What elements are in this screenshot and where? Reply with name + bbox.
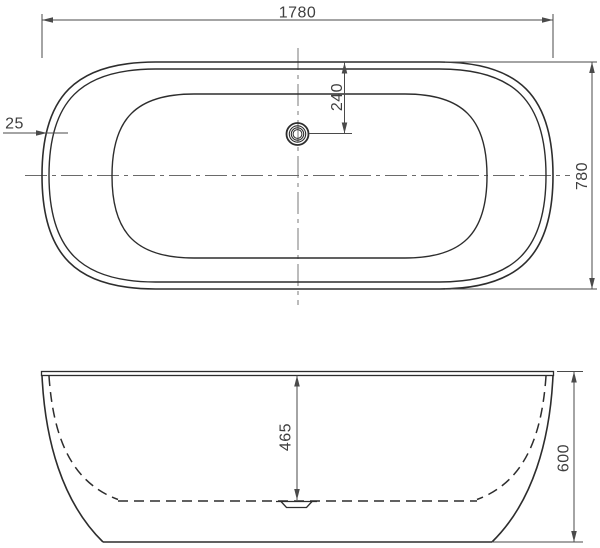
drain-recess-icon (276, 502, 317, 508)
basin-outline (112, 94, 487, 258)
bathtub-technical-drawing: 1780 25 240 780 (0, 0, 600, 548)
dim-label-inner-depth: 465 (278, 423, 295, 451)
arrow-down-icon (342, 123, 348, 134)
dim-label-rim-thickness: 25 (5, 116, 24, 133)
arrow-left-icon (42, 17, 53, 23)
dim-label-drain-offset: 240 (329, 83, 346, 111)
arrow-down-icon (589, 278, 595, 289)
dim-label-overall-length: 1780 (279, 5, 317, 22)
drawing-svg: 1780 25 240 780 (0, 0, 600, 548)
dim-overall-height: 600 (492, 372, 583, 543)
dim-drain-offset: 240 (309, 62, 352, 134)
arrow-down-icon (571, 531, 577, 542)
arrow-up-icon (571, 372, 577, 383)
arrow-right-icon (542, 17, 553, 23)
rim-edge-outline (42, 372, 554, 376)
dim-inner-depth: 465 (278, 376, 300, 501)
arrow-down-icon (294, 489, 300, 500)
inner-wall-right (477, 376, 546, 500)
drain-icon (287, 123, 309, 145)
arrow-up-icon (342, 63, 348, 74)
dim-overall-length: 1780 (42, 5, 553, 58)
arrow-up-icon (589, 62, 595, 73)
side-view: 465 600 (42, 372, 584, 543)
arrow-up-icon (294, 376, 300, 387)
top-view: 1780 25 240 780 (3, 5, 597, 305)
dim-label-overall-width: 780 (574, 162, 591, 190)
inner-wall-left (49, 376, 118, 500)
dim-label-overall-height: 600 (556, 444, 573, 472)
